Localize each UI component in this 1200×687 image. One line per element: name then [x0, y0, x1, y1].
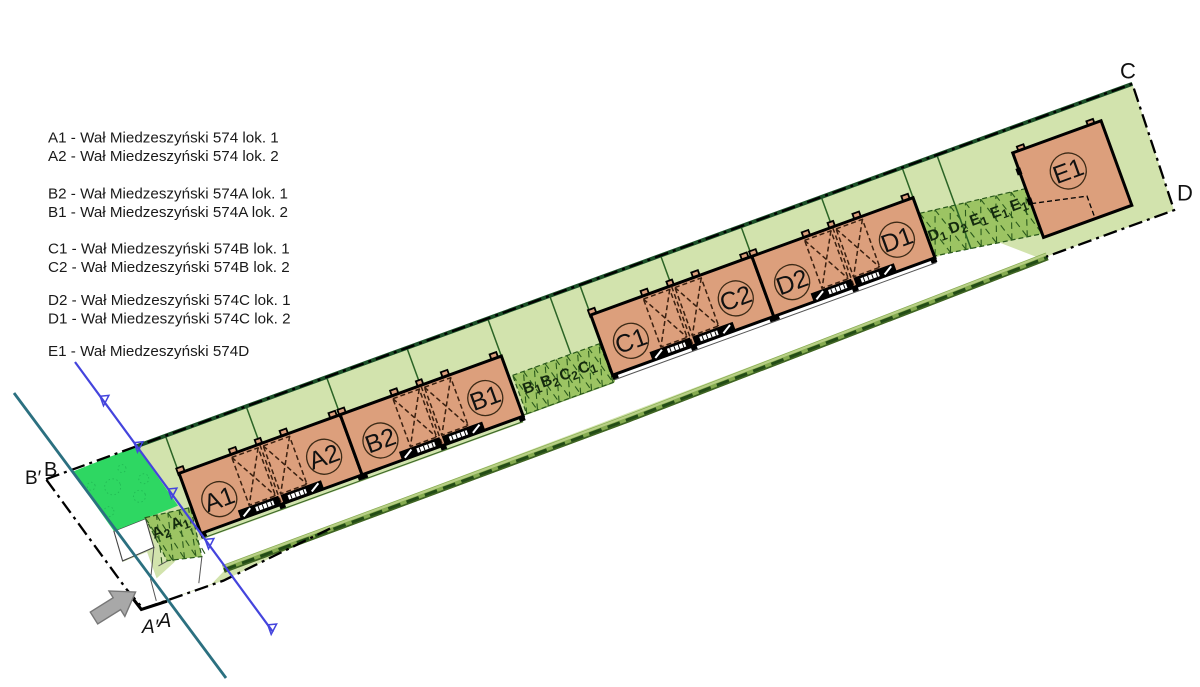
svg-text:E1 - Wał Miedzeszyński 574D: E1 - Wał Miedzeszyński 574D — [48, 343, 249, 360]
svg-text:B1 - Wał Miedzeszyński 574A lo: B1 - Wał Miedzeszyński 574A lok. 2 — [48, 204, 288, 221]
svg-text:C: C — [1120, 59, 1136, 84]
svg-text:B′: B′ — [25, 468, 42, 489]
svg-text:C1 - Wał Miedzeszyński 574B lo: C1 - Wał Miedzeszyński 574B lok. 1 — [48, 240, 290, 257]
svg-text:A: A — [157, 610, 171, 632]
svg-text:A′: A′ — [141, 617, 160, 638]
svg-text:D2 - Wał Miedzeszyński 574C lo: D2 - Wał Miedzeszyński 574C lok. 1 — [48, 292, 291, 309]
svg-text:B2 - Wał Miedzeszyński 574A lo: B2 - Wał Miedzeszyński 574A lok. 1 — [48, 185, 288, 202]
svg-text:D: D — [1177, 181, 1193, 206]
svg-text:D1 - Wał Miedzeszyński 574C lo: D1 - Wał Miedzeszyński 574C lok. 2 — [48, 310, 291, 327]
svg-text:B: B — [44, 459, 57, 481]
svg-text:A1 - Wał Miedzeszyński 574 lok: A1 - Wał Miedzeszyński 574 lok. 1 — [48, 129, 279, 146]
svg-text:C2 - Wał Miedzeszyński 574B lo: C2 - Wał Miedzeszyński 574B lok. 2 — [48, 259, 290, 276]
svg-text:A2 - Wał Miedzeszyński 574 lok: A2 - Wał Miedzeszyński 574 lok. 2 — [48, 148, 279, 165]
